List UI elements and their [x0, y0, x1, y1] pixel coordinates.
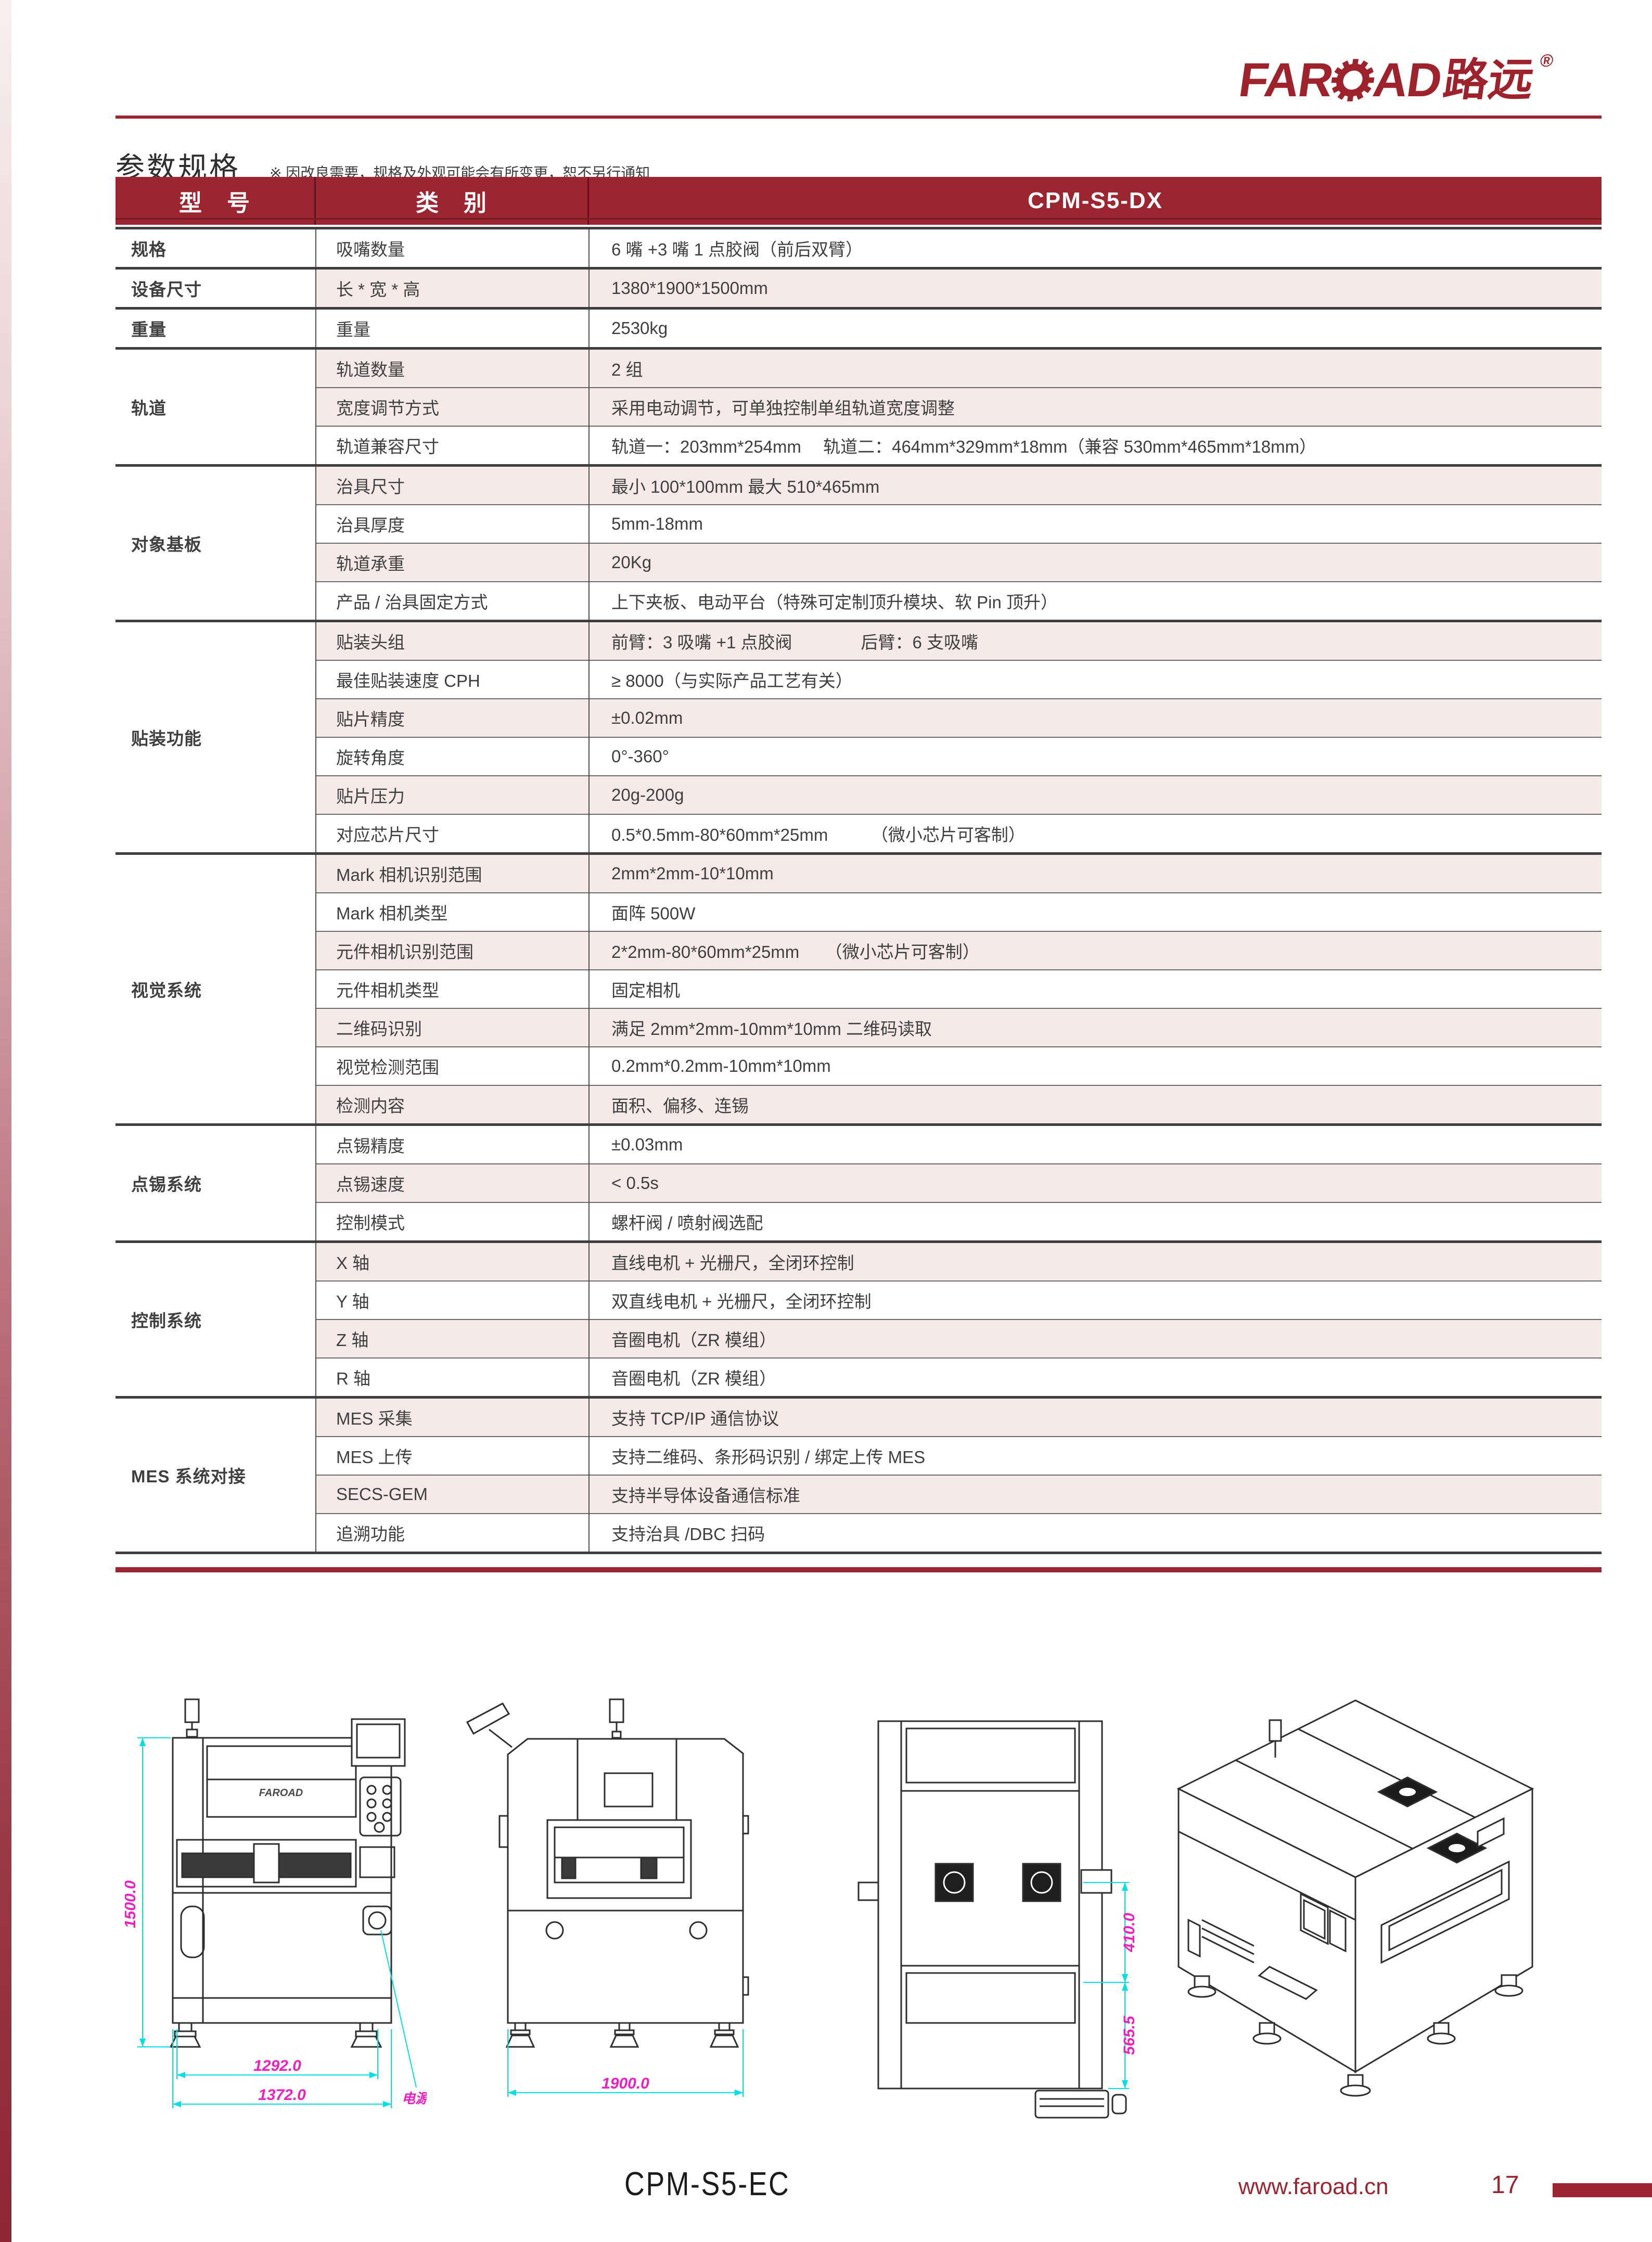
spec-table: 规格吸嘴数量6 嘴 +3 嘴 1 点胶阀（前后双臂）设备尺寸长 * 宽 * 高1…: [116, 227, 1602, 1554]
spec-table-row: R 轴音圈电机（ZR 模组）: [116, 1358, 1602, 1398]
datasheet-page: FAR AD 路远: [0, 0, 1652, 2242]
spec-table-row: 控制模式螺杆阀 / 喷射阀选配: [116, 1202, 1602, 1242]
spec-table-row: 轨道承重20Kg: [116, 543, 1602, 582]
spec-row-value: 0.2mm*0.2mm-10mm*10mm: [589, 1047, 1602, 1085]
spec-table-row: 设备尺寸长 * 宽 * 高1380*1900*1500mm: [116, 268, 1602, 309]
spec-row-label: 吸嘴数量: [316, 228, 589, 268]
spec-table-row: 视觉系统Mark 相机识别范围2mm*2mm-10*10mm: [116, 854, 1602, 893]
spec-table-header: 型 号 类 别 CPM-S5-DX: [116, 177, 1602, 225]
spec-row-value: 采用电动调节，可单独控制单组轨道宽度调整: [589, 388, 1602, 426]
spec-row-label: 重量: [316, 309, 589, 349]
spec-row-value: 双直线电机 + 光栅尺，全闭环控制: [589, 1281, 1602, 1319]
spec-row-value: 2mm*2mm-10*10mm: [589, 854, 1602, 893]
spec-table-body: 规格吸嘴数量6 嘴 +3 嘴 1 点胶阀（前后双臂）设备尺寸长 * 宽 * 高1…: [116, 228, 1602, 1553]
spec-row-label: 贴片精度: [316, 699, 589, 737]
spec-row-label: 检测内容: [316, 1085, 589, 1125]
spec-table-row: Z 轴音圈电机（ZR 模组）: [116, 1319, 1602, 1358]
spec-row-value: 面积、偏移、连锡: [589, 1085, 1602, 1125]
spec-row-label: 点锡速度: [316, 1164, 589, 1202]
spec-row-value: 满足 2mm*2mm-10mm*10mm 二维码读取: [589, 1008, 1602, 1047]
spec-table-row: 控制系统X 轴直线电机 + 光栅尺，全闭环控制: [116, 1242, 1602, 1282]
spec-row-label: R 轴: [316, 1358, 589, 1398]
spec-table-row: 旋转角度0°-360°: [116, 737, 1602, 776]
spec-row-value: ±0.02mm: [589, 699, 1602, 737]
spec-row-value: 前臂：3 吸嘴 +1 点胶阀 后臂：6 支吸嘴: [589, 621, 1602, 661]
spec-row-label: MES 上传: [316, 1437, 589, 1475]
footer-model-name: CPM-S5-EC: [624, 2164, 790, 2203]
spec-table-row: 元件相机类型固定相机: [116, 970, 1602, 1008]
spec-group-label: 轨道: [116, 349, 316, 466]
spec-table-row: 宽度调节方式采用电动调节，可单独控制单组轨道宽度调整: [116, 388, 1602, 426]
spec-table-row: 产品 / 治具固定方式上下夹板、电动平台（特殊可定制顶升模块、软 Pin 顶升）: [116, 582, 1602, 621]
spec-row-label: 控制模式: [316, 1202, 589, 1242]
spec-row-value: 固定相机: [589, 970, 1602, 1008]
spec-table-row: 检测内容面积、偏移、连锡: [116, 1085, 1602, 1125]
front-view-drawing: FAROAD 1500.0 1292.0 1372.0 电源: [125, 1686, 427, 2123]
front-outer-width-dim: 1372.0: [258, 2086, 306, 2104]
spec-table-row: 贴片压力20g-200g: [116, 776, 1602, 814]
spec-row-label: MES 采集: [316, 1398, 589, 1437]
spec-table-row: Y 轴双直线电机 + 光栅尺，全闭环控制: [116, 1281, 1602, 1319]
spec-row-label: 治具尺寸: [316, 466, 589, 505]
spec-group-label: 重量: [116, 309, 316, 349]
spec-group-label: 贴装功能: [116, 621, 316, 854]
spec-row-label: 视觉检测范围: [316, 1047, 589, 1085]
spec-row-value: 5mm-18mm: [589, 505, 1602, 543]
spec-group-label: 设备尺寸: [116, 268, 316, 309]
spec-row-label: Z 轴: [316, 1319, 589, 1358]
spec-row-value: 0.5*0.5mm-80*60mm*25mm （微小芯片可客制）: [589, 814, 1602, 854]
spec-table-row: 点锡系统点锡精度±0.03mm: [116, 1125, 1602, 1164]
spec-group-label: 控制系统: [116, 1242, 316, 1398]
spec-row-value: 2 组: [589, 349, 1602, 388]
spec-row-label: 贴片压力: [316, 776, 589, 814]
header-accent-line: [116, 218, 1602, 220]
table-bottom-red-line: [116, 1567, 1602, 1572]
spec-row-value: ±0.03mm: [589, 1125, 1602, 1164]
front-view-brand: FAROAD: [259, 1787, 303, 1799]
front-height-dim: 1500.0: [125, 1880, 139, 1928]
spec-row-value: 2*2mm-80*60mm*25mm （微小芯片可客制）: [589, 931, 1602, 970]
spec-row-value: < 0.5s: [589, 1164, 1602, 1202]
spec-row-label: Mark 相机识别范围: [316, 854, 589, 893]
spec-table-row: 贴片精度±0.02mm: [116, 699, 1602, 737]
spec-row-value: 支持 TCP/IP 通信协议: [589, 1398, 1602, 1437]
spec-table-row: 规格吸嘴数量6 嘴 +3 嘴 1 点胶阀（前后双臂）: [116, 228, 1602, 268]
spec-row-label: 贴装头组: [316, 621, 589, 661]
spec-row-value: 轨道一：203mm*254mm 轨道二：464mm*329mm*18mm（兼容 …: [589, 426, 1602, 466]
footer-website: www.faroad.cn: [1238, 2174, 1389, 2200]
top-view-drawing: 410.0 565.5: [848, 1660, 1150, 2128]
spec-row-label: 治具厚度: [316, 505, 589, 543]
spec-row-label: Mark 相机类型: [316, 893, 589, 931]
spec-row-value: 2530kg: [589, 309, 1602, 349]
spec-table-row: 点锡速度< 0.5s: [116, 1164, 1602, 1202]
spec-row-value: 0°-360°: [589, 737, 1602, 776]
logo-text-far: FAR: [1236, 56, 1336, 104]
logo-text-ad: AD: [1371, 56, 1444, 104]
spec-table-row: 对象基板治具尺寸最小 100*100mm 最大 510*465mm: [116, 466, 1602, 505]
spec-group-label: 对象基板: [116, 466, 316, 621]
spec-table-row: 贴装功能贴装头组前臂：3 吸嘴 +1 点胶阀 后臂：6 支吸嘴: [116, 621, 1602, 661]
spec-row-value: 支持治具 /DBC 扫码: [589, 1514, 1602, 1553]
spec-row-label: 元件相机类型: [316, 970, 589, 1008]
spec-row-value: 音圈电机（ZR 模组）: [589, 1319, 1602, 1358]
spec-table-row: 最佳贴装速度 CPH≥ 8000（与实际产品工艺有关）: [116, 660, 1602, 699]
top-upper-dim: 410.0: [1121, 1913, 1138, 1952]
spec-table-row: 元件相机识别范围2*2mm-80*60mm*25mm （微小芯片可客制）: [116, 931, 1602, 970]
left-accent-strip: [0, 0, 11, 2242]
spec-table-row: MES 系统对接MES 采集支持 TCP/IP 通信协议: [116, 1398, 1602, 1437]
spec-row-label: 二维码识别: [316, 1008, 589, 1047]
spec-row-label: 对应芯片尺寸: [316, 814, 589, 854]
spec-group-label: 点锡系统: [116, 1125, 316, 1242]
spec-table-row: 对应芯片尺寸0.5*0.5mm-80*60mm*25mm （微小芯片可客制）: [116, 814, 1602, 854]
spec-row-label: 追溯功能: [316, 1514, 589, 1553]
side-depth-dim: 1900.0: [601, 2075, 649, 2092]
spec-row-label: 轨道数量: [316, 349, 589, 388]
spec-row-label: 点锡精度: [316, 1125, 589, 1164]
spec-group-label: MES 系统对接: [116, 1398, 316, 1553]
registered-mark: ®: [1539, 51, 1555, 71]
logo-text-cn: 路远: [1441, 58, 1536, 103]
header-divider-line: [116, 116, 1602, 119]
spec-row-label: 轨道承重: [316, 543, 589, 582]
spec-table-row: 视觉检测范围0.2mm*0.2mm-10mm*10mm: [116, 1047, 1602, 1085]
spec-row-value: 1380*1900*1500mm: [589, 268, 1602, 309]
spec-row-label: Y 轴: [316, 1281, 589, 1319]
spec-row-value: 音圈电机（ZR 模组）: [589, 1358, 1602, 1398]
spec-row-label: SECS-GEM: [316, 1475, 589, 1514]
spec-row-value: 面阵 500W: [589, 893, 1602, 931]
spec-row-label: X 轴: [316, 1242, 589, 1282]
spec-table-row: MES 上传支持二维码、条形码识别 / 绑定上传 MES: [116, 1437, 1602, 1475]
spec-row-label: 宽度调节方式: [316, 388, 589, 426]
spec-row-label: 旋转角度: [316, 737, 589, 776]
spec-row-value: 支持半导体设备通信标准: [589, 1475, 1602, 1514]
spec-group-label: 规格: [116, 228, 316, 268]
spec-group-label: 视觉系统: [116, 854, 316, 1125]
spec-table-row: 重量重量2530kg: [116, 309, 1602, 349]
power-callout-label: 电源: [402, 2091, 427, 2106]
spec-row-value: 20Kg: [589, 543, 1602, 582]
top-lower-dim: 565.5: [1121, 2015, 1138, 2055]
isometric-view-drawing: [1145, 1675, 1566, 2107]
spec-row-value: 6 嘴 +3 嘴 1 点胶阀（前后双臂）: [589, 228, 1602, 268]
faroad-logo: FAR AD 路远: [1236, 54, 1554, 106]
spec-row-value: ≥ 8000（与实际产品工艺有关）: [589, 660, 1602, 699]
spec-row-label: 元件相机识别范围: [316, 931, 589, 970]
spec-row-label: 轨道兼容尺寸: [316, 426, 589, 466]
spec-table-row: 治具厚度5mm-18mm: [116, 505, 1602, 543]
spec-row-label: 产品 / 治具固定方式: [316, 582, 589, 621]
spec-table-row: 二维码识别满足 2mm*2mm-10mm*10mm 二维码读取: [116, 1008, 1602, 1047]
spec-row-value: 支持二维码、条形码识别 / 绑定上传 MES: [589, 1437, 1602, 1475]
spec-table-row: 轨道兼容尺寸轨道一：203mm*254mm 轨道二：464mm*329mm*18…: [116, 426, 1602, 466]
spec-table-row: Mark 相机类型面阵 500W: [116, 893, 1602, 931]
spec-row-value: 最小 100*100mm 最大 510*465mm: [589, 466, 1602, 505]
spec-row-value: 20g-200g: [589, 776, 1602, 814]
gear-icon: [1328, 58, 1378, 102]
spec-table-row: 轨道轨道数量2 组: [116, 349, 1602, 388]
spec-table-row: 追溯功能支持治具 /DBC 扫码: [116, 1514, 1602, 1553]
spec-row-value: 螺杆阀 / 喷射阀选配: [589, 1202, 1602, 1242]
footer-red-bar: [1553, 2183, 1652, 2197]
spec-table-row: SECS-GEM支持半导体设备通信标准: [116, 1475, 1602, 1514]
spec-row-label: 长 * 宽 * 高: [316, 268, 589, 309]
spec-row-value: 直线电机 + 光栅尺，全闭环控制: [589, 1242, 1602, 1282]
side-view-drawing: 1900.0: [458, 1686, 791, 2123]
spec-row-value: 上下夹板、电动平台（特殊可定制顶升模块、软 Pin 顶升）: [589, 582, 1602, 621]
footer-page-number: 17: [1491, 2171, 1519, 2199]
spec-row-label: 最佳贴装速度 CPH: [316, 660, 589, 699]
front-inner-width-dim: 1292.0: [253, 2057, 301, 2074]
